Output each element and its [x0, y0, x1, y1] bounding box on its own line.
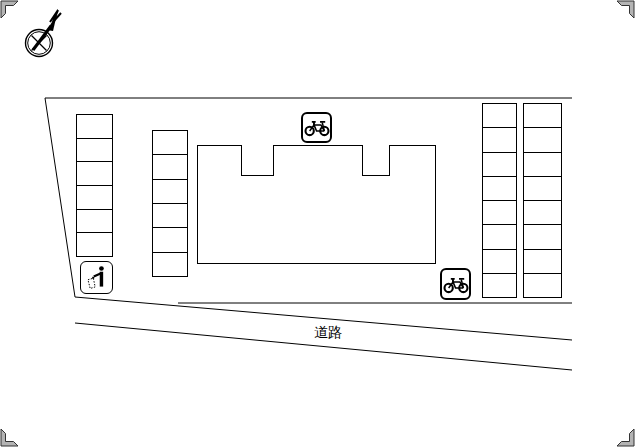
parking-stall: [483, 249, 516, 273]
parking-stall: [483, 104, 516, 127]
road-edge-lower: [75, 323, 572, 370]
parking-stall: [153, 131, 187, 154]
corner-mark-top-left: [1, 1, 18, 18]
corner-mark-bottom-right: [617, 429, 634, 446]
north-compass-icon: [22, 6, 64, 60]
parking-stall: [153, 203, 187, 227]
garbage-station-icon: [80, 261, 113, 294]
road-edge-upper: [75, 297, 572, 340]
building-entrance-notch-2: [362, 145, 390, 176]
parking-stall: [524, 176, 561, 200]
parking-stall: [77, 232, 112, 256]
parking-stall: [77, 138, 112, 162]
parking-stall: [483, 224, 516, 248]
parking-stall: [153, 179, 187, 203]
parking-lot-right-outer: [523, 103, 562, 298]
parking-stall: [524, 152, 561, 176]
parking-stall: [524, 200, 561, 224]
corner-mark-top-right: [617, 1, 634, 18]
parking-stall: [77, 209, 112, 233]
parking-stall: [524, 249, 561, 273]
parking-stall: [77, 161, 112, 185]
parking-stall: [483, 200, 516, 224]
building-outline: [197, 145, 436, 264]
site-boundary-left: [45, 98, 75, 297]
parking-lot-right-inner: [482, 103, 517, 298]
parking-stall: [483, 273, 516, 297]
parking-stall: [153, 154, 187, 178]
parking-stall: [524, 273, 561, 297]
parking-stall: [483, 152, 516, 176]
bicycle-parking-icon-top: [301, 112, 332, 143]
site-plan-canvas: 道路: [0, 0, 635, 447]
parking-stall: [77, 115, 112, 138]
parking-stall: [77, 185, 112, 209]
corner-mark-bottom-left: [1, 429, 18, 446]
building-entrance-notch-1: [241, 145, 274, 176]
parking-stall: [524, 127, 561, 151]
parking-stall: [483, 176, 516, 200]
parking-lot-left: [76, 114, 113, 257]
parking-stall: [524, 224, 561, 248]
parking-stall: [483, 127, 516, 151]
parking-lot-middle: [152, 130, 188, 277]
parking-stall: [524, 104, 561, 127]
bicycle-parking-icon-bottom: [440, 268, 471, 300]
parking-stall: [153, 227, 187, 251]
parking-stall: [153, 252, 187, 276]
road-label: 道路: [314, 324, 342, 340]
